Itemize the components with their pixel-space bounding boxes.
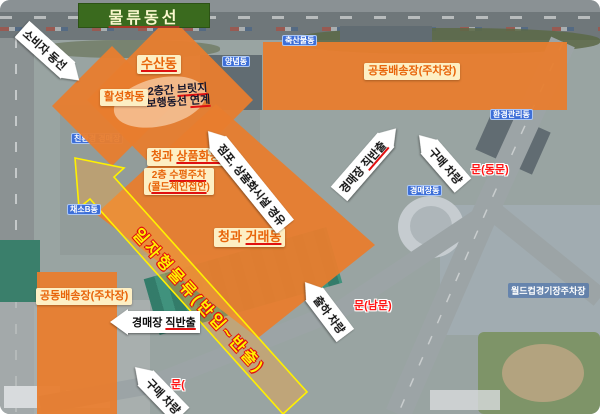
building-tag-eco-auction: 친환경 경매장 <box>71 133 123 144</box>
zone-label-parking-2f: 2층 수평주차 (콜드체인접안) <box>144 168 214 195</box>
zone-label-text: ) <box>207 182 210 193</box>
zone-label-text-underlined: 콜드체인접안 <box>151 182 206 193</box>
zone-label-text: 청과 <box>218 229 246 244</box>
zone-label-text: 청과 <box>151 149 176 163</box>
logistics-flow-map: 친환경 경매장 일자형물류(반입~반출) 물류동선 2층간 브릿지 보행동선 연… <box>0 0 600 414</box>
gate-label-south: 문(남문) <box>354 297 392 313</box>
zone-label-text: 공동배송장(주차장) <box>40 290 128 302</box>
arrow-text: 경매장 직반출 <box>128 311 200 333</box>
note-text-underlined: 연계 <box>190 94 211 107</box>
building-tag-auction-hall: 경매장동 <box>407 185 442 196</box>
building-tag-environment: 환경관리동 <box>490 109 533 120</box>
building-tag-seasoning: 양념동 <box>222 56 250 67</box>
zone-label-line2: (콜드체인접안) <box>148 182 210 194</box>
zone-label-joint-delivery-west: 공동배송장(주차장) <box>36 288 132 305</box>
zone-label-activation: 활성화동 <box>100 89 148 106</box>
arrow-head-icon <box>110 309 128 335</box>
gate-label-east: 문(동문) <box>471 161 509 177</box>
zone-label-text: 공동배송장(주차장) <box>368 65 456 77</box>
zone-label-line1: 2층 수평주차 <box>148 170 210 182</box>
arrow-text-underlined: 직반출 <box>165 317 195 329</box>
zone-label-text-underlined: 수평주차 <box>169 170 206 181</box>
zone-label-text: 2층 <box>152 170 170 181</box>
arrow-auction-direct-out-left: 경매장 직반출 <box>110 309 200 335</box>
area-tag-worldcup-parking: 월드컵경기장주차장 <box>508 283 589 298</box>
zone-label-joint-delivery-north: 공동배송장(주차장) <box>364 63 460 80</box>
page-title: 물류동선 <box>78 3 210 28</box>
zone-label-text: 수산동 <box>141 56 177 71</box>
building-tag-vegetable-b: 채소B동 <box>67 204 101 215</box>
building-tag-livestock: 축산물동 <box>282 35 317 46</box>
arrow-text: 경매장 <box>132 317 165 329</box>
zone-label-fisheries: 수산동 <box>137 55 181 74</box>
zone-label-text: 활성화동 <box>104 91 144 103</box>
